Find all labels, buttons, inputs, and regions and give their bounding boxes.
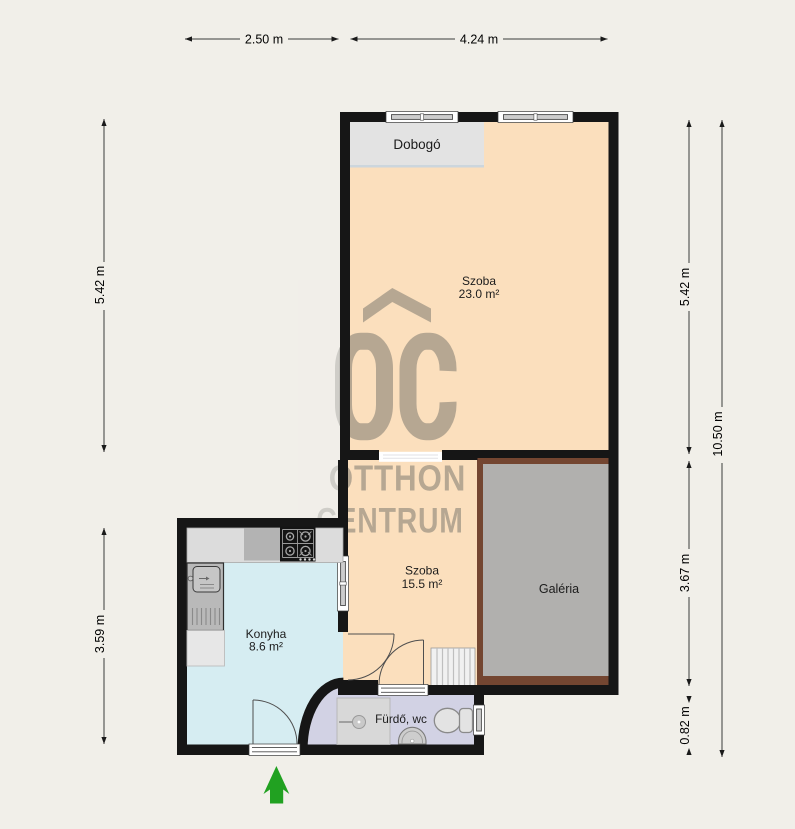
svg-text:5.42 m: 5.42 m <box>93 266 107 304</box>
svg-text:23.0 m²: 23.0 m² <box>459 287 500 301</box>
svg-text:Dobogó: Dobogó <box>393 137 440 152</box>
svg-text:15.5 m²: 15.5 m² <box>402 577 443 591</box>
svg-text:10.50 m: 10.50 m <box>711 411 725 456</box>
svg-text:3.67 m: 3.67 m <box>678 554 692 592</box>
svg-text:Szoba: Szoba <box>405 564 439 578</box>
svg-text:OTTHON: OTTHON <box>329 458 466 499</box>
svg-text:2.50 m: 2.50 m <box>245 33 283 47</box>
svg-text:Galéria: Galéria <box>539 582 579 596</box>
svg-text:5.42 m: 5.42 m <box>678 268 692 306</box>
svg-text:4.24 m: 4.24 m <box>460 33 498 47</box>
svg-text:Fürdő, wc: Fürdő, wc <box>375 712 427 726</box>
svg-text:Szoba: Szoba <box>462 274 496 288</box>
svg-text:8.6 m²: 8.6 m² <box>249 640 283 654</box>
svg-text:3.59 m: 3.59 m <box>93 615 107 653</box>
svg-text:0.82 m: 0.82 m <box>678 706 692 744</box>
